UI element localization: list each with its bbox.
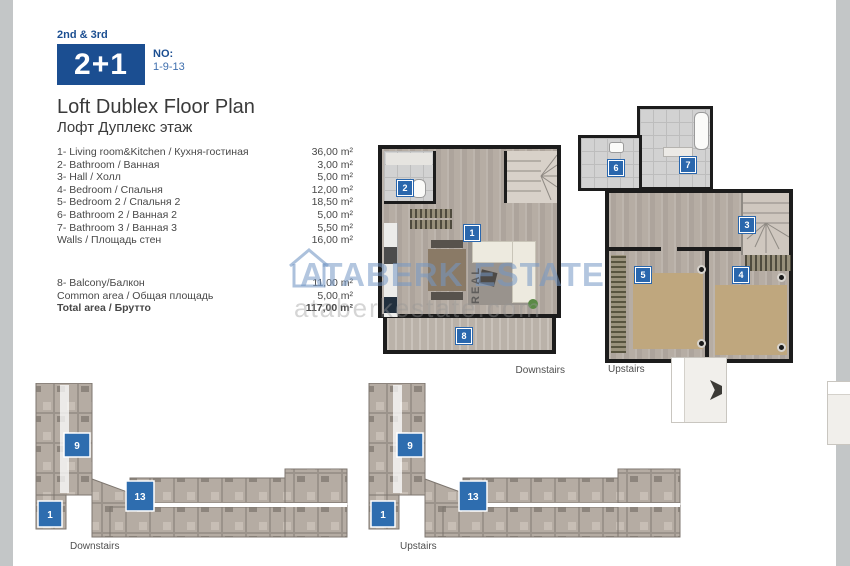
room-label: Common area / Общая площадь	[57, 290, 213, 303]
total-area-row: Total area / Брутто 117,00 m²	[57, 302, 353, 315]
room-number-badge-balcony: 8	[456, 328, 472, 344]
bathroom2-area: 6	[578, 135, 642, 191]
upstairs-unit-plan: 7 6	[577, 105, 797, 367]
room-number-badge-hall: 3	[739, 217, 755, 233]
room-area: 5,00 m²	[317, 171, 353, 184]
room-label: 2- Bathroom / Ванная	[57, 159, 160, 172]
toilet-fixture	[609, 142, 624, 153]
room-label: 1- Living room&Kitchen / Кухня-гостиная	[57, 146, 249, 159]
unit-number: 9	[74, 441, 80, 452]
dining-table	[428, 249, 466, 291]
bedroom2-rug	[633, 273, 703, 349]
stairs-area	[504, 151, 557, 203]
bed-pillows	[828, 382, 850, 395]
sink-counter	[663, 147, 693, 157]
room-number-badge-bath3: 7	[680, 157, 696, 173]
building-floor-plan-upstairs: 9 13 1	[363, 383, 681, 541]
bed	[827, 381, 850, 445]
unit-number: 1	[380, 510, 386, 521]
room-list-extras: 8- Balcony/Балкон 11,00 m² Common area /…	[57, 277, 353, 315]
room-label: 7- Bathroom 3 / Ванная 3	[57, 222, 177, 235]
room-area: 5,00 m²	[317, 290, 353, 303]
room-row: 6- Bathroom 2 / Ванная 2 5,00 m²	[57, 209, 353, 222]
unit-no-value: 1-9-13	[153, 61, 185, 73]
floor-spot	[697, 265, 706, 274]
viewer-gutter-right	[836, 0, 850, 566]
kitchen-counter	[384, 223, 398, 317]
building-outline: 9 13 1	[363, 383, 681, 541]
building-outline: 9 13 1	[30, 383, 348, 541]
upstairs-floor-caption: Upstairs	[400, 541, 437, 552]
interior-wall	[609, 247, 661, 251]
closet-hatch	[410, 220, 452, 229]
room-area: 16,00 m²	[312, 234, 353, 247]
bathtub-fixture	[694, 112, 709, 150]
room-row: 4- Bedroom / Спальня 12,00 m²	[57, 184, 353, 197]
wardrobe-hatch	[611, 255, 626, 353]
viewer-gutter-left	[0, 0, 13, 566]
room-label: 4- Bedroom / Спальня	[57, 184, 163, 197]
bedroom-rug	[715, 285, 787, 355]
page-title: Loft Dublex Floor Plan	[57, 96, 255, 119]
living-room-area: 1 2	[378, 145, 561, 318]
room-area: 5,00 m²	[317, 209, 353, 222]
room-label: 6- Bathroom 2 / Ванная 2	[57, 209, 177, 222]
floor-spot	[697, 339, 706, 348]
room-list: 1- Living room&Kitchen / Кухня-гостиная …	[57, 146, 353, 247]
floor-spot	[777, 343, 786, 352]
fridge-appliance	[384, 297, 397, 313]
room-label: 3- Hall / Холл	[57, 171, 121, 184]
room-row: Walls / Площадь стен 16,00 m²	[57, 234, 353, 247]
floor-spot	[777, 273, 786, 282]
downstairs-floor-caption: Downstairs	[70, 541, 119, 552]
unit-no-label: NO:	[153, 48, 173, 60]
room-area: 11,00 m²	[312, 277, 353, 290]
wardrobe-hatch	[745, 255, 791, 271]
interior-wall	[677, 247, 741, 251]
stove-appliance	[384, 247, 397, 264]
closet-hatch	[410, 209, 452, 218]
sofa	[512, 241, 536, 303]
room-row: 5- Bedroom 2 / Спальня 2 18,50 m²	[57, 196, 353, 209]
living-room-rug	[468, 241, 536, 305]
room-row: Common area / Общая площадь 5,00 m²	[57, 290, 353, 303]
room-number-badge-bath: 2	[397, 180, 413, 196]
plant	[528, 299, 538, 309]
room-number-badge-bath2: 6	[608, 160, 624, 176]
room-number-badge-bedroom2: 5	[635, 267, 651, 283]
bathroom-area	[384, 151, 436, 204]
room-number-badge-living: 1	[464, 225, 480, 241]
vanity-counter	[386, 153, 432, 165]
total-area-value: 117,00 m²	[306, 302, 353, 315]
room-area: 36,00 m²	[312, 146, 353, 159]
upstairs-unit-caption: Upstairs	[608, 364, 645, 375]
downstairs-unit-caption: Downstairs	[480, 365, 565, 376]
toilet-fixture	[412, 179, 426, 198]
room-area: 12,00 m²	[312, 184, 353, 197]
bed-throw	[710, 380, 722, 400]
unit-number: 1	[47, 510, 53, 521]
unit-number: 9	[407, 441, 413, 452]
apartment-type-badge: 2+1	[57, 44, 145, 85]
unit-number: 13	[134, 492, 146, 503]
corridor	[463, 503, 680, 507]
dining-chairs	[431, 292, 463, 300]
apartment-type-label: 2+1	[74, 48, 128, 82]
building-floor-plan-downstairs: 9 13 1	[30, 383, 348, 541]
dining-chairs	[431, 240, 463, 248]
total-area-label: Total area / Брутто	[57, 302, 151, 315]
room-row: 8- Balcony/Балкон 11,00 m²	[57, 277, 353, 290]
floor-plan-page: 2nd & 3rd 2+1 NO: 1-9-13 Loft Dublex Flo…	[0, 0, 850, 566]
page-title-ru: Лофт Дуплекс этаж	[57, 119, 192, 136]
room-row: 3- Hall / Холл 5,00 m²	[57, 171, 353, 184]
room-area: 3,00 m²	[317, 159, 353, 172]
room-label: 5- Bedroom 2 / Спальня 2	[57, 196, 180, 209]
room-area: 18,50 m²	[312, 196, 353, 209]
balcony-area: 8	[383, 318, 556, 354]
corridor	[130, 503, 347, 507]
downstairs-unit-plan: 1 2 8	[377, 142, 567, 363]
coffee-table	[479, 269, 498, 286]
room-label: 8- Balcony/Балкон	[57, 277, 145, 290]
room-label: Walls / Площадь стен	[57, 234, 161, 247]
room-row: 1- Living room&Kitchen / Кухня-гостиная …	[57, 146, 353, 159]
room-row: 7- Bathroom 3 / Ванная 3 5,50 m²	[57, 222, 353, 235]
floor-numbers-label: 2nd & 3rd	[57, 29, 108, 41]
unit-number: 13	[467, 492, 479, 503]
stairs-treads	[507, 151, 557, 200]
upstairs-floor-area: 3 5 4	[605, 189, 793, 363]
room-row: 2- Bathroom / Ванная 3,00 m²	[57, 159, 353, 172]
room-number-badge-bedroom: 4	[733, 267, 749, 283]
room-area: 5,50 m²	[317, 222, 353, 235]
